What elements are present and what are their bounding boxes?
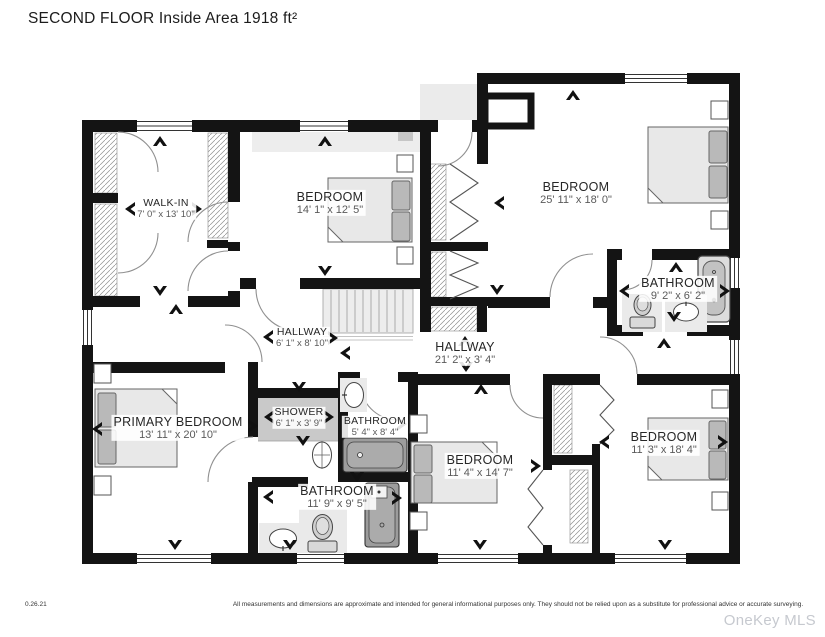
room-dims: 6' 1" x 8' 10"	[276, 339, 328, 350]
room-dims: 11' 3" x 18' 4"	[631, 444, 698, 456]
nightstand	[397, 247, 413, 264]
bed-bedroom-25x18	[648, 101, 728, 229]
room-name: HALLWAY	[435, 340, 495, 354]
room-name: BEDROOM	[447, 453, 514, 467]
nightstand	[711, 211, 728, 229]
room-name: PRIMARY BEDROOM	[113, 415, 242, 429]
room-name: BATHROOM	[641, 276, 715, 290]
room-label-bathroom-5x8: BATHROOM 5' 4" x 8' 4"	[342, 416, 408, 438]
pedestal-sink-vestibule	[313, 441, 332, 469]
room-dims: 7' 0" x 13' 10"	[137, 210, 194, 221]
sink-bathroom-5x8	[340, 378, 367, 412]
room-dims: 13' 11" x 20' 10"	[113, 429, 242, 441]
room-dims: 6' 1" x 3' 9"	[274, 419, 323, 430]
room-dims: 11' 9" x 9' 5"	[300, 498, 374, 510]
room-label-bathroom-9x6: BATHROOM 9' 2" x 6' 2"	[639, 276, 717, 302]
room-label-bedroom-11x18: BEDROOM 11' 3" x 18' 4"	[629, 430, 700, 456]
room-dims: 14' 1" x 12' 5"	[297, 204, 364, 216]
floor-plan-canvas	[0, 0, 825, 637]
room-label-walk-in: WALK-IN 7' 0" x 13' 10"	[135, 198, 196, 220]
room-label-hallway-6x8: HALLWAY 6' 1" x 8' 10"	[274, 327, 330, 349]
onekey-mls-watermark: OneKey MLS	[724, 612, 816, 629]
nightstand	[711, 101, 728, 119]
sink-bathroom-11x9	[259, 523, 307, 553]
nightstand	[410, 512, 427, 530]
footer-version: 0.26.21	[25, 601, 47, 608]
nightstand	[712, 390, 728, 408]
nightstand	[397, 155, 413, 172]
room-name: BATHROOM	[344, 416, 406, 428]
nightstand	[94, 476, 111, 495]
footer-disclaimer: All measurements and dimensions are appr…	[220, 601, 816, 608]
nightstand	[94, 364, 111, 383]
room-name: BEDROOM	[540, 180, 612, 194]
room-name: HALLWAY	[276, 327, 328, 339]
nightstand	[410, 415, 427, 433]
room-name: WALK-IN	[137, 198, 194, 210]
room-label-primary-bedroom: PRIMARY BEDROOM 13' 11" x 20' 10"	[111, 415, 244, 441]
floor-plan-page: SECOND FLOOR Inside Area 1918 ft²	[0, 0, 825, 637]
room-dims: 11' 4" x 14' 7"	[447, 467, 514, 479]
bathtub-bathroom-5x8	[343, 438, 407, 472]
room-name: BEDROOM	[631, 430, 698, 444]
chimney	[485, 96, 531, 126]
room-dims: 9' 2" x 6' 2"	[641, 290, 715, 302]
room-name: BEDROOM	[297, 190, 364, 204]
room-dims: 21' 2" x 3' 4"	[435, 354, 495, 366]
room-name: BATHROOM	[300, 484, 374, 498]
room-label-shower: SHOWER 6' 1" x 3' 9"	[272, 407, 325, 429]
room-label-bathroom-11x9: BATHROOM 11' 9" x 9' 5"	[298, 484, 376, 510]
room-label-bedroom-14x12: BEDROOM 14' 1" x 12' 5"	[295, 190, 366, 216]
room-dims: 5' 4" x 8' 4"	[344, 428, 406, 439]
room-dims: 25' 11" x 18' 0"	[540, 194, 612, 206]
room-label-hallway-21x3: HALLWAY 21' 2" x 3' 4"	[433, 340, 497, 366]
room-label-bedroom-11x14: BEDROOM 11' 4" x 14' 7"	[445, 453, 516, 479]
room-label-bedroom-25x18: BEDROOM 25' 11" x 18' 0"	[538, 180, 614, 206]
room-name: SHOWER	[274, 407, 323, 419]
nightstand	[712, 492, 728, 510]
staircase	[323, 289, 413, 340]
